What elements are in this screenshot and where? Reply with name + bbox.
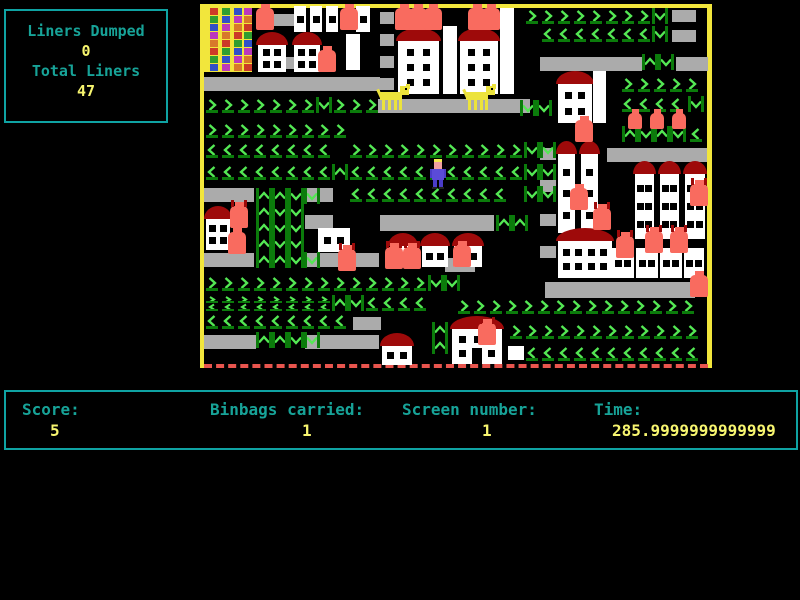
tile-bar bbox=[256, 204, 259, 220]
chevron-tile-right bbox=[584, 298, 600, 314]
chevron-tile-left bbox=[396, 164, 412, 180]
tile-bar bbox=[272, 252, 275, 268]
tile-bar bbox=[430, 199, 442, 202]
flats-window bbox=[244, 32, 252, 39]
chevron-tile-left bbox=[588, 26, 604, 42]
house-roof bbox=[420, 233, 450, 246]
player-head bbox=[434, 162, 442, 169]
house-window bbox=[483, 49, 490, 56]
dog-leg bbox=[399, 100, 402, 110]
chevron-tile-down bbox=[316, 97, 332, 113]
tile-bar bbox=[206, 135, 218, 138]
flats-window bbox=[210, 40, 218, 47]
tile-bar bbox=[272, 332, 275, 348]
tile-bar bbox=[458, 311, 470, 314]
house-roof bbox=[380, 333, 414, 346]
conveyor-belt bbox=[380, 12, 394, 24]
chevron-tile-right bbox=[488, 298, 504, 314]
chevron-tile-left bbox=[380, 186, 396, 202]
tile-bar bbox=[382, 199, 394, 202]
tile-bar bbox=[414, 288, 426, 291]
tile-bar bbox=[525, 215, 528, 231]
bin-handle bbox=[646, 225, 649, 232]
binbags-label: Binbags carried: bbox=[210, 400, 364, 419]
flats-window bbox=[210, 32, 218, 39]
tile-bar bbox=[366, 177, 378, 180]
house bbox=[294, 6, 306, 32]
conveyor-belt bbox=[272, 14, 296, 26]
dog-leg bbox=[388, 100, 391, 110]
house bbox=[556, 228, 614, 278]
bin-sprite bbox=[575, 120, 593, 142]
bin-handle bbox=[399, 241, 402, 248]
tile-bar bbox=[654, 358, 666, 361]
chevron-tile-right bbox=[504, 298, 520, 314]
chevron-tile-right bbox=[444, 142, 460, 158]
chevron-tile-left bbox=[268, 142, 284, 158]
tile-bar bbox=[432, 322, 435, 338]
flats-window bbox=[234, 64, 242, 71]
chevron-tile-down bbox=[288, 332, 304, 348]
chevron-tile-left bbox=[252, 142, 268, 158]
bin-sprite bbox=[593, 208, 611, 230]
chevron-tile-up bbox=[256, 220, 272, 236]
chevron-tile-left bbox=[204, 142, 220, 158]
house-body bbox=[310, 6, 322, 32]
chevron-tile-down bbox=[288, 236, 304, 252]
tile-bar bbox=[254, 309, 266, 311]
tile-bar bbox=[286, 155, 298, 158]
tile-bar bbox=[512, 215, 515, 231]
house-window bbox=[309, 61, 316, 68]
bin-sprite bbox=[628, 113, 642, 129]
chevron-tile-left bbox=[316, 313, 332, 329]
tile-bar bbox=[524, 142, 527, 158]
tile-bar bbox=[462, 177, 474, 180]
chevron-tile-left bbox=[236, 313, 252, 329]
bin-handle bbox=[492, 317, 495, 324]
flats-window bbox=[210, 24, 218, 31]
house-window bbox=[637, 185, 644, 192]
tile-bar bbox=[398, 155, 410, 158]
chevron-tile-down bbox=[652, 26, 668, 42]
chevron-tile-up bbox=[496, 215, 512, 231]
tile-bar bbox=[658, 54, 661, 70]
house-body bbox=[422, 246, 448, 267]
chevron-tile-right bbox=[332, 275, 348, 291]
tile-bar bbox=[206, 155, 218, 158]
bin-sprite bbox=[616, 236, 634, 258]
tile-bar bbox=[318, 309, 330, 311]
flats-window bbox=[234, 16, 242, 23]
chevron-tile-right bbox=[204, 275, 220, 291]
tile-bar bbox=[652, 8, 655, 24]
tile-bar bbox=[654, 89, 666, 92]
bin-sprite bbox=[256, 8, 274, 30]
chevron-tile-right bbox=[236, 122, 252, 138]
tile-bar bbox=[366, 110, 378, 113]
chevron-tile-right bbox=[236, 275, 252, 291]
chevron-tile-right bbox=[620, 323, 636, 339]
chevron-tile-right bbox=[492, 142, 508, 158]
house-window bbox=[695, 260, 702, 267]
house-window bbox=[586, 169, 593, 176]
bin-sprite bbox=[453, 245, 471, 267]
bin-sprite bbox=[670, 231, 688, 253]
tile-bar bbox=[606, 336, 618, 339]
chevron-tile-right bbox=[652, 76, 668, 92]
bin-body bbox=[672, 113, 686, 129]
tile-bar bbox=[222, 135, 234, 138]
chevron-tile-right bbox=[220, 275, 236, 291]
house-window bbox=[468, 49, 475, 56]
tile-bar bbox=[524, 186, 527, 202]
tile-bar bbox=[549, 100, 552, 116]
conveyor-belt bbox=[607, 148, 707, 162]
house-window bbox=[600, 249, 607, 256]
chevron-tile-right bbox=[364, 275, 380, 291]
tile-bar bbox=[490, 311, 502, 314]
chevron-tile-down bbox=[658, 54, 674, 70]
tile-bar bbox=[430, 155, 442, 158]
flats-window bbox=[244, 48, 252, 55]
tile-bar bbox=[382, 155, 394, 158]
house-roof bbox=[579, 141, 600, 154]
chevron-tile-right bbox=[552, 298, 568, 314]
house-window bbox=[624, 260, 631, 267]
house-window bbox=[297, 16, 304, 23]
chevron-tile-right bbox=[668, 323, 684, 339]
flats-window bbox=[222, 8, 230, 15]
chevron-tile-right bbox=[620, 8, 636, 24]
tile-bar bbox=[445, 322, 448, 338]
chevron-tile-down bbox=[288, 188, 304, 204]
house-body bbox=[346, 34, 360, 70]
tile-bar bbox=[606, 21, 618, 24]
bin-sprite bbox=[385, 247, 403, 269]
chevron-tile-left bbox=[284, 142, 300, 158]
chevron-tile-right bbox=[508, 323, 524, 339]
chevron-tile-left bbox=[604, 26, 620, 42]
dog-body bbox=[466, 92, 488, 100]
chevron-tile-left bbox=[236, 142, 252, 158]
tile-bar bbox=[670, 358, 682, 361]
tile-bar bbox=[286, 326, 298, 329]
chevron-tile-right bbox=[600, 298, 616, 314]
chevron-tile-right bbox=[668, 76, 684, 92]
house-window bbox=[563, 263, 570, 270]
tile-bar bbox=[414, 308, 426, 311]
chevron-tile-right bbox=[684, 323, 700, 339]
tile-bar bbox=[348, 295, 351, 311]
tile-bar bbox=[510, 336, 522, 339]
house-body bbox=[558, 241, 612, 278]
chevron-tile-right bbox=[396, 275, 412, 291]
flats-window bbox=[222, 16, 230, 23]
house-body bbox=[508, 346, 524, 360]
chevron-tile-right bbox=[348, 142, 364, 158]
house-window bbox=[274, 49, 281, 56]
chevron-tile-left bbox=[524, 345, 540, 361]
house-window bbox=[459, 336, 466, 343]
chevron-tile-right bbox=[220, 122, 236, 138]
tile-bar bbox=[670, 336, 682, 339]
chevron-tile-left bbox=[364, 295, 380, 311]
bin-body bbox=[650, 113, 664, 129]
flats-window bbox=[244, 56, 252, 63]
tile-bar bbox=[686, 336, 698, 339]
tile-bar bbox=[642, 54, 645, 70]
chevron-tile-left bbox=[476, 164, 492, 180]
house-body bbox=[443, 26, 457, 94]
chevron-tile-right bbox=[524, 323, 540, 339]
tile-bar bbox=[286, 309, 298, 311]
chevron-tile-down bbox=[688, 96, 704, 112]
tile-bar bbox=[238, 326, 250, 329]
bin-body bbox=[453, 245, 471, 267]
tile-bar bbox=[665, 26, 668, 42]
chevron-tile-left bbox=[492, 164, 508, 180]
tile-bar bbox=[304, 332, 307, 348]
tile-bar bbox=[302, 177, 314, 180]
chevron-tile-right bbox=[572, 323, 588, 339]
chevron-tile-right bbox=[284, 97, 300, 113]
chevron-tile-right bbox=[588, 323, 604, 339]
chevron-tile-mini bbox=[236, 295, 252, 311]
tile-bar bbox=[506, 311, 518, 314]
tile-bar bbox=[288, 236, 291, 252]
bin-body bbox=[593, 208, 611, 230]
tile-bar bbox=[270, 177, 282, 180]
chevron-tile-left bbox=[220, 142, 236, 158]
tile-bar bbox=[350, 288, 362, 291]
house-window bbox=[615, 260, 622, 267]
binbags-value: 1 bbox=[302, 421, 312, 440]
house-roof bbox=[556, 71, 594, 84]
game-screen: Liners Dumped 0 Total Liners 47 Score: 5… bbox=[0, 0, 800, 600]
chevron-tile-right bbox=[508, 142, 524, 158]
conveyor-belt bbox=[305, 215, 333, 229]
tile-bar bbox=[288, 252, 291, 268]
chevron-tile-right bbox=[364, 142, 380, 158]
chevron-tile-mini bbox=[284, 295, 300, 311]
tile-bar bbox=[558, 21, 570, 24]
tile-bar bbox=[398, 308, 410, 311]
dog-leg bbox=[485, 100, 488, 110]
tile-bar bbox=[272, 220, 275, 236]
chevron-tile-right bbox=[204, 97, 220, 113]
bin-body bbox=[670, 231, 688, 253]
tile-bar bbox=[494, 177, 506, 180]
dog-leg bbox=[468, 100, 471, 110]
tile-bar bbox=[638, 89, 650, 92]
chevron-tile-down bbox=[272, 220, 288, 236]
chevron-tile-right bbox=[412, 142, 428, 158]
dog-sprite bbox=[378, 84, 412, 112]
tile-bar bbox=[318, 326, 330, 329]
tile-bar bbox=[286, 301, 298, 303]
tile-bar bbox=[206, 110, 218, 113]
chevron-tile-left bbox=[380, 295, 396, 311]
bin-sprite bbox=[403, 247, 421, 269]
chevron-tile-right bbox=[684, 76, 700, 92]
tile-bar bbox=[222, 155, 234, 158]
tile-bar bbox=[304, 252, 307, 268]
tile-bar bbox=[256, 220, 259, 236]
house-window bbox=[588, 263, 595, 270]
tile-bar bbox=[302, 288, 314, 291]
bin-body bbox=[570, 188, 588, 210]
chevron-tile-up bbox=[332, 295, 348, 311]
conveyor-belt bbox=[540, 214, 556, 226]
chevron-tile-left bbox=[396, 186, 412, 202]
conveyor-belt bbox=[545, 282, 695, 298]
house bbox=[500, 8, 514, 94]
tile-bar bbox=[496, 215, 499, 231]
tile-bar bbox=[526, 21, 538, 24]
chevron-tile-right bbox=[412, 275, 428, 291]
chevron-tile-left bbox=[396, 295, 412, 311]
house-body bbox=[382, 346, 412, 365]
house-window bbox=[298, 49, 305, 56]
flats-window bbox=[210, 48, 218, 55]
tile-bar bbox=[317, 188, 320, 204]
tile-bar bbox=[444, 275, 447, 291]
house-window bbox=[220, 237, 227, 244]
tile-bar bbox=[270, 110, 282, 113]
chevron-tile-mini bbox=[220, 295, 236, 311]
tile-bar bbox=[574, 21, 586, 24]
bin-body bbox=[575, 120, 593, 142]
tile-bar bbox=[446, 177, 458, 180]
tile-bar bbox=[222, 326, 234, 329]
house-window bbox=[575, 249, 582, 256]
tile-bar bbox=[238, 288, 250, 291]
chevron-tile-down bbox=[536, 100, 552, 116]
chevron-tile-mini bbox=[252, 295, 268, 311]
tile-bar bbox=[542, 358, 554, 361]
chevron-tile-left bbox=[684, 345, 700, 361]
chevron-tile-right bbox=[316, 122, 332, 138]
chevron-tile-right bbox=[524, 8, 540, 24]
flats-window bbox=[234, 56, 242, 63]
bin-handle bbox=[684, 225, 687, 232]
chevron-tile-mini bbox=[300, 295, 316, 311]
chevron-tile-right bbox=[472, 298, 488, 314]
time-label: Time: bbox=[594, 400, 642, 419]
house-window bbox=[313, 16, 320, 23]
tile-bar bbox=[238, 301, 250, 303]
tile-bar bbox=[690, 139, 702, 142]
tile-bar bbox=[618, 311, 630, 314]
chevron-tile-down bbox=[540, 164, 556, 180]
chevron-tile-left bbox=[636, 26, 652, 42]
conveyor-belt bbox=[380, 56, 394, 68]
player-leg bbox=[433, 180, 437, 187]
chevron-tile-down bbox=[428, 275, 444, 291]
chevron-tile-down bbox=[288, 220, 304, 236]
house-window bbox=[298, 61, 305, 68]
bin-body bbox=[690, 184, 708, 206]
bin-sprite bbox=[645, 231, 663, 253]
chevron-tile-left bbox=[688, 126, 704, 142]
dog-leg bbox=[382, 100, 385, 110]
house-window bbox=[578, 92, 585, 99]
tile-bar bbox=[317, 252, 320, 268]
tile-bar bbox=[558, 336, 570, 339]
house-window bbox=[309, 49, 316, 56]
tile-bar bbox=[462, 199, 474, 202]
chevron-tile-left bbox=[444, 164, 460, 180]
tile-bar bbox=[302, 155, 314, 158]
chevron-tile-left bbox=[508, 164, 524, 180]
chevron-tile-left bbox=[620, 26, 636, 42]
house-window bbox=[423, 49, 430, 56]
tile-bar bbox=[622, 21, 634, 24]
flats-window bbox=[222, 40, 230, 47]
chevron-tile-left bbox=[220, 313, 236, 329]
chevron-tile-right bbox=[604, 8, 620, 24]
dog-leg bbox=[480, 100, 483, 110]
flats-window bbox=[234, 48, 242, 55]
tile-bar bbox=[206, 301, 218, 303]
flats-window bbox=[234, 24, 242, 31]
score-label: Score: bbox=[22, 400, 80, 419]
bin-handle bbox=[244, 200, 247, 207]
house bbox=[326, 6, 338, 32]
chevron-tile-right bbox=[556, 8, 572, 24]
bin-sprite bbox=[230, 206, 248, 228]
tile-bar bbox=[366, 155, 378, 158]
tile-bar bbox=[622, 126, 625, 142]
house-window bbox=[423, 79, 430, 86]
tile-bar bbox=[286, 177, 298, 180]
tile-bar bbox=[254, 177, 266, 180]
tile-bar bbox=[272, 204, 275, 220]
chevron-tile-left bbox=[236, 164, 252, 180]
chevron-tile-right bbox=[220, 97, 236, 113]
tile-bar bbox=[332, 164, 335, 180]
bin-sprite bbox=[318, 50, 336, 72]
house-body bbox=[356, 6, 370, 32]
tile-bar bbox=[414, 155, 426, 158]
tile-bar bbox=[638, 109, 650, 112]
chevron-tile-down bbox=[520, 100, 536, 116]
flats-window bbox=[210, 16, 218, 23]
bin-handle bbox=[417, 241, 420, 248]
bin-sprite bbox=[340, 8, 358, 30]
house-window bbox=[686, 260, 693, 267]
tile-bar bbox=[222, 110, 234, 113]
house-window bbox=[563, 212, 570, 219]
chevron-tile-right bbox=[636, 8, 652, 24]
chevron-tile-right bbox=[300, 122, 316, 138]
chevron-tile-right bbox=[348, 275, 364, 291]
flats-window bbox=[244, 16, 252, 23]
chevron-tile-right bbox=[284, 122, 300, 138]
conveyor-belt bbox=[672, 10, 696, 22]
tile-bar bbox=[457, 275, 460, 291]
house-window bbox=[637, 221, 644, 228]
chevron-tile-up bbox=[256, 332, 272, 348]
tile-bar bbox=[318, 155, 330, 158]
game-playfield[interactable] bbox=[0, 0, 800, 380]
tile-bar bbox=[570, 311, 582, 314]
chevron-tile-down bbox=[304, 188, 320, 204]
chevron-tile-left bbox=[540, 26, 556, 42]
conveyor-belt bbox=[540, 57, 642, 71]
chevron-tile-right bbox=[540, 323, 556, 339]
